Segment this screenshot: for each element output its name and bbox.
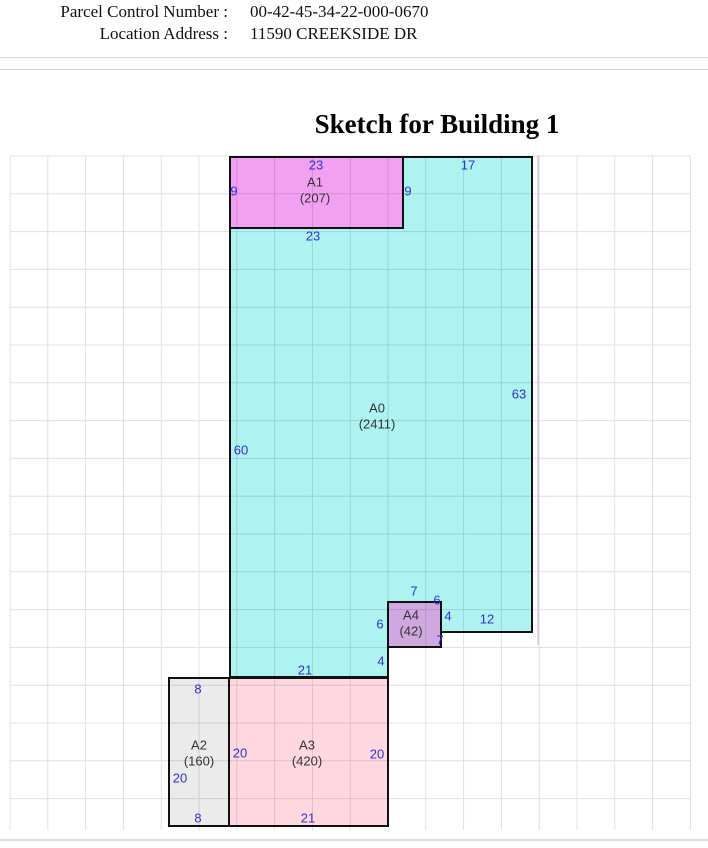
dimension-label: 4 xyxy=(444,609,451,624)
dimension-label: 9 xyxy=(230,184,237,199)
dimension-label: 17 xyxy=(461,158,475,173)
dimension-label: 60 xyxy=(234,443,248,458)
dimension-label: 8 xyxy=(194,682,201,697)
area-sqft-label-A3: (420) xyxy=(292,754,322,769)
dimension-label: 20 xyxy=(173,771,187,786)
dimension-label: 7 xyxy=(436,633,443,648)
dimension-label: 63 xyxy=(512,387,526,402)
area-code-label-A3: A3 xyxy=(299,738,315,753)
area-code-label-A0: A0 xyxy=(369,401,385,416)
dimension-label: 6 xyxy=(376,617,383,632)
area-sqft-label-A4: (42) xyxy=(399,624,422,639)
area-code-label-A4: A4 xyxy=(403,608,419,623)
area-code-label-A1: A1 xyxy=(307,175,323,190)
area-sqft-label-A2: (160) xyxy=(184,754,214,769)
dimension-label: 6 xyxy=(433,593,440,608)
dimension-label: 7 xyxy=(410,584,417,599)
dimension-label: 21 xyxy=(298,663,312,678)
area-sqft-label-A1: (207) xyxy=(300,191,330,206)
dimension-label: 20 xyxy=(370,747,384,762)
dimension-label: 8 xyxy=(194,811,201,826)
dimension-label: 23 xyxy=(306,229,320,244)
dimension-label: 9 xyxy=(404,184,411,199)
dimension-label: 12 xyxy=(480,612,494,627)
area-sqft-label-A0: (2411) xyxy=(359,417,396,432)
dimension-label: 21 xyxy=(301,811,315,826)
separator-line-bottom xyxy=(0,839,708,841)
dimension-label: 4 xyxy=(377,654,384,669)
dimension-label: 23 xyxy=(309,158,323,173)
building-sketch-canvas: A0(2411)A1(207)A4(42)A2(160)A3(420)23179… xyxy=(0,0,708,848)
dimension-label: 20 xyxy=(233,746,247,761)
area-code-label-A2: A2 xyxy=(191,738,207,753)
grid xyxy=(10,156,690,830)
